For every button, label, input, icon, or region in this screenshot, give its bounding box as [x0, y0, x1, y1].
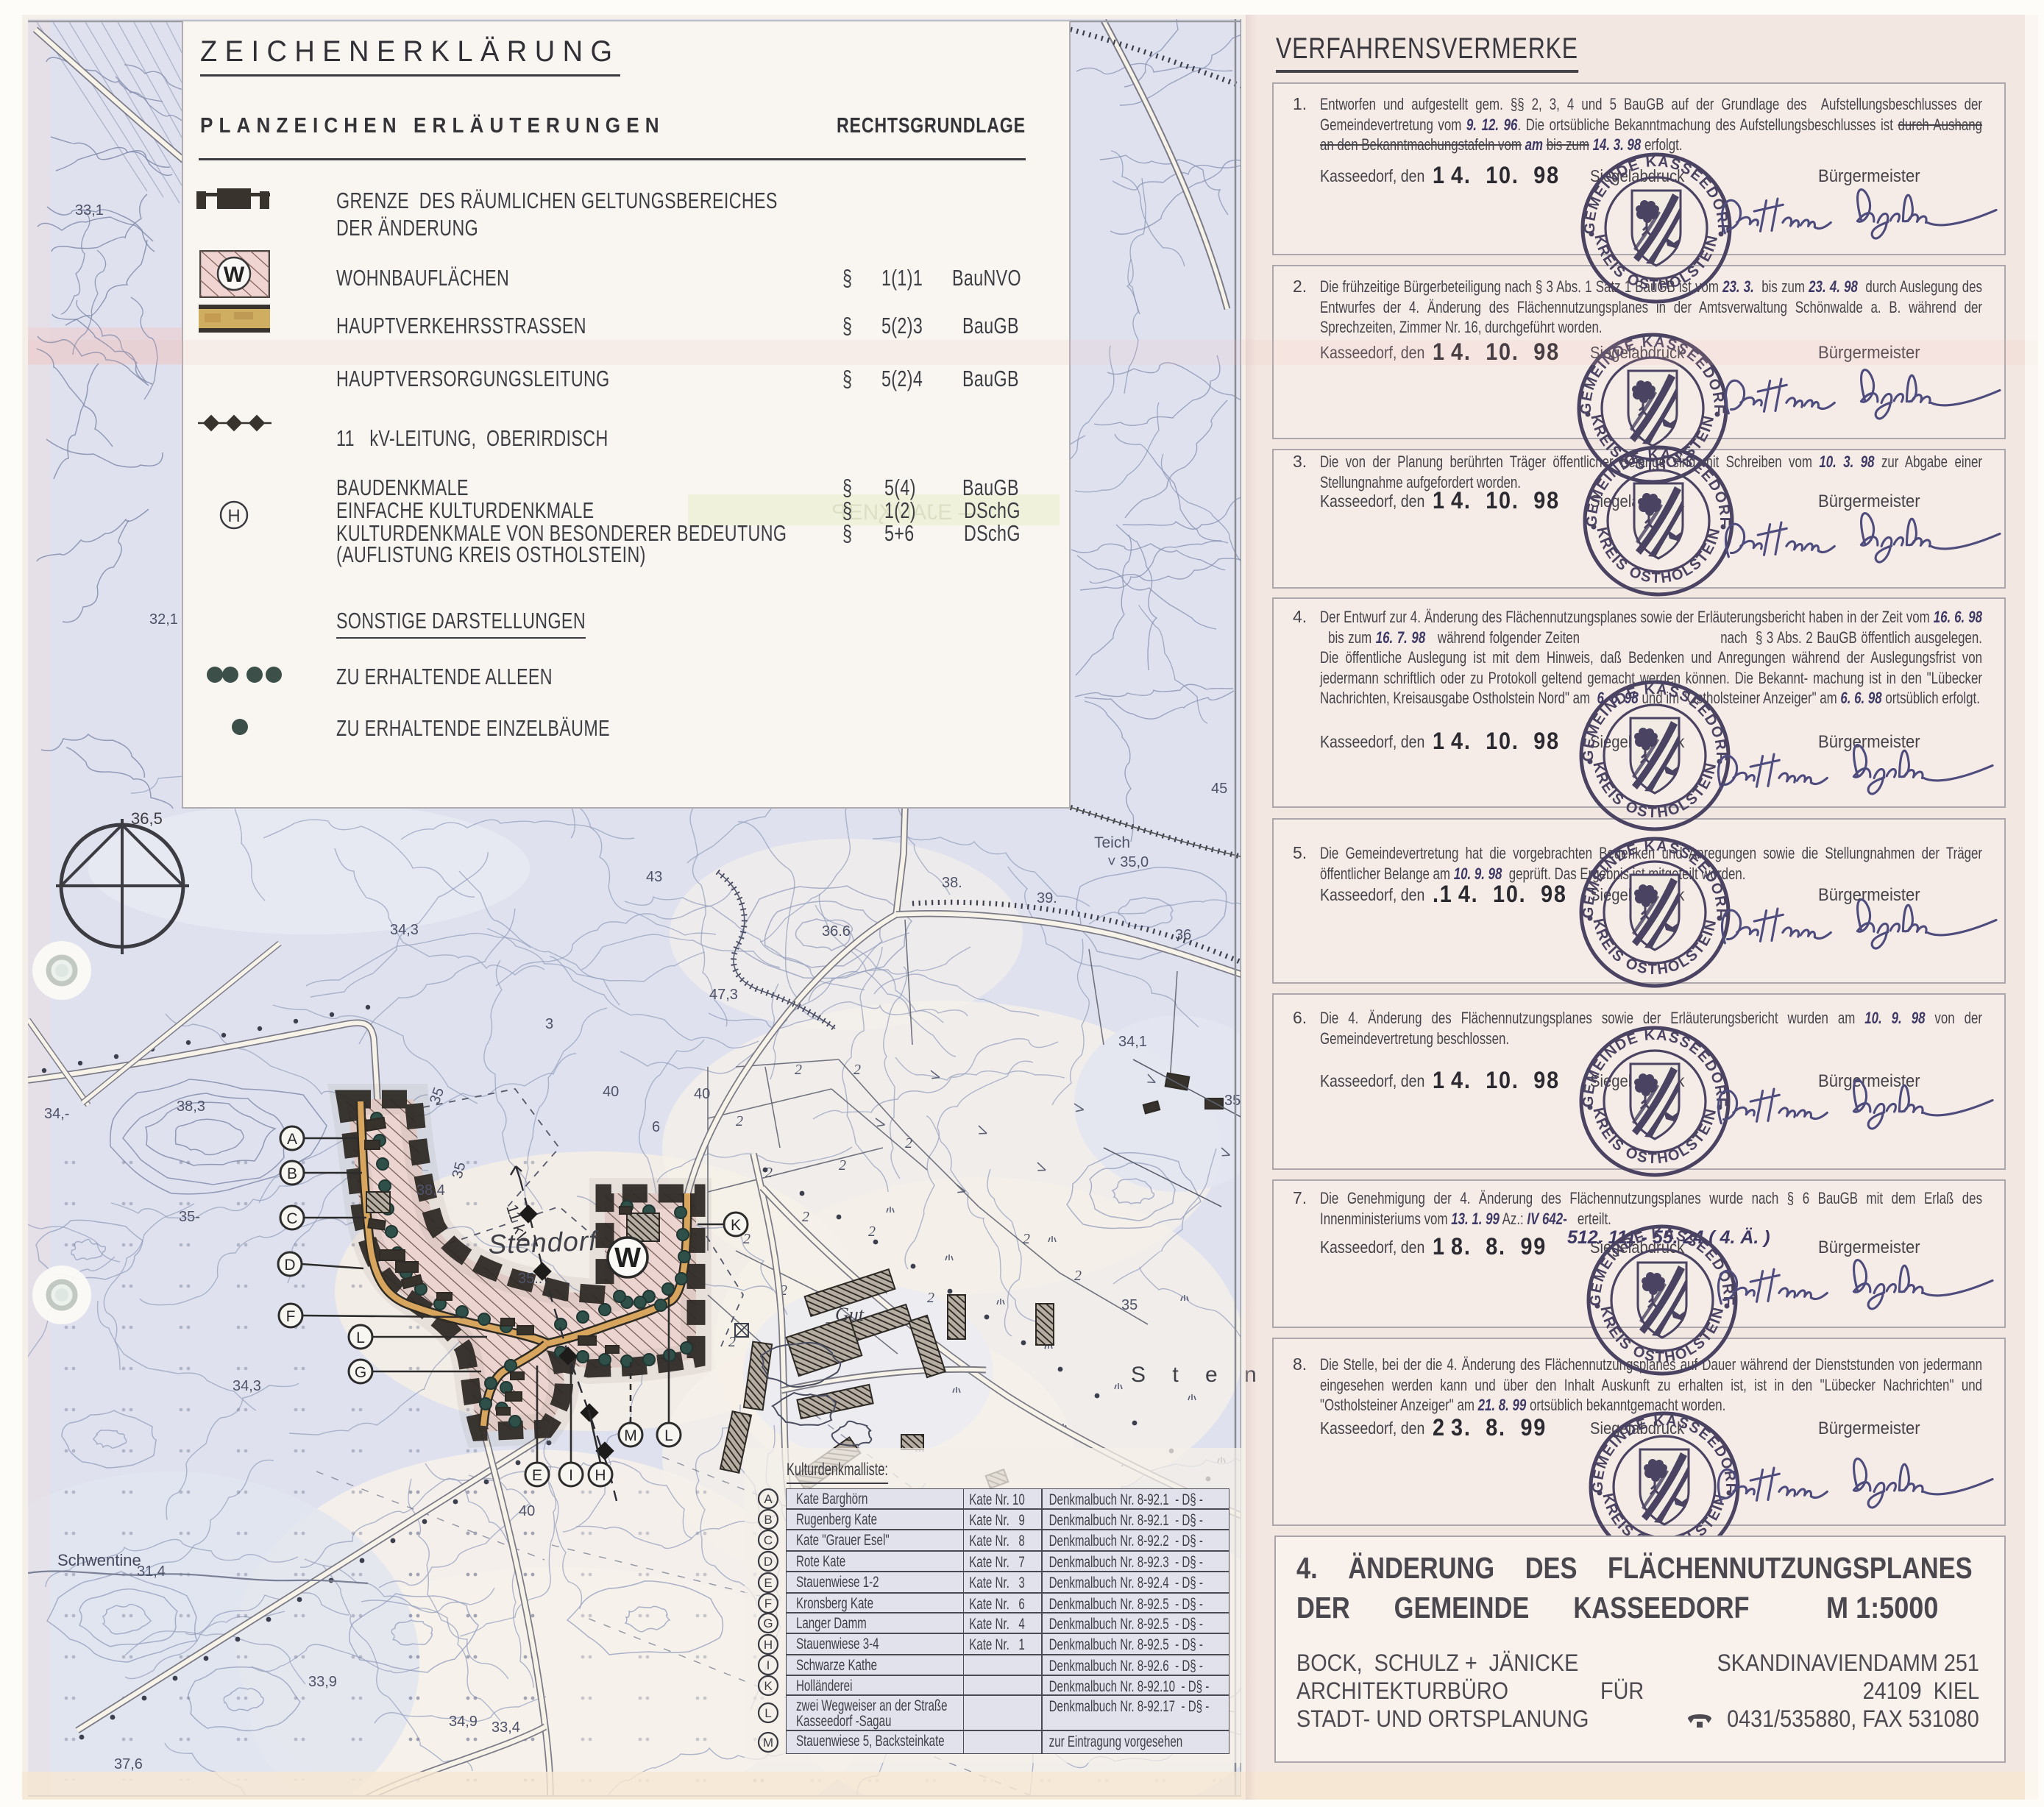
- svg-text:B: B: [764, 1513, 772, 1527]
- svg-text:40: 40: [694, 1086, 710, 1102]
- svg-text:34,1: 34,1: [1118, 1034, 1147, 1050]
- svg-text:2: 2: [839, 1157, 846, 1174]
- svg-text:Stendorf: Stendorf: [488, 1226, 600, 1260]
- svg-text:6: 6: [652, 1119, 660, 1135]
- svg-text:36: 36: [1175, 927, 1191, 943]
- svg-text:34,3: 34,3: [390, 922, 419, 938]
- svg-text:Teich: Teich: [1094, 834, 1130, 851]
- svg-text:F: F: [764, 1597, 772, 1611]
- svg-text:2: 2: [795, 1062, 802, 1078]
- svg-text:34,3: 34,3: [233, 1378, 261, 1394]
- svg-text:G: G: [763, 1616, 773, 1630]
- svg-text:35: 35: [1224, 1093, 1241, 1109]
- svg-text:3: 3: [545, 1016, 553, 1032]
- svg-text:E: E: [532, 1467, 542, 1484]
- svg-text:38,4: 38,4: [416, 1182, 445, 1199]
- svg-text:B: B: [287, 1165, 297, 1182]
- svg-text:2: 2: [802, 1209, 809, 1225]
- svg-text:D: D: [764, 1555, 773, 1569]
- svg-text:45: 45: [1211, 781, 1227, 797]
- svg-text:Schwentine: Schwentine: [57, 1551, 141, 1569]
- svg-text:H: H: [595, 1467, 606, 1484]
- svg-text:2: 2: [736, 1113, 743, 1129]
- svg-text:C: C: [286, 1210, 297, 1227]
- svg-text:35-: 35-: [179, 1209, 200, 1225]
- svg-text:36.6: 36.6: [822, 923, 851, 940]
- svg-text:M: M: [763, 1736, 773, 1750]
- svg-text:A: A: [764, 1492, 773, 1506]
- svg-text:L: L: [356, 1329, 365, 1346]
- svg-text:38.: 38.: [942, 875, 962, 891]
- svg-text:H: H: [227, 506, 240, 526]
- svg-text:36,5: 36,5: [131, 809, 163, 828]
- svg-text:K: K: [764, 1679, 773, 1693]
- svg-text:37,6: 37,6: [114, 1756, 143, 1772]
- svg-text:H: H: [764, 1638, 773, 1652]
- svg-text:31,4: 31,4: [137, 1563, 166, 1580]
- svg-text:W: W: [224, 263, 245, 287]
- svg-text:33,1: 33,1: [75, 202, 104, 219]
- svg-text:D: D: [284, 1257, 295, 1274]
- svg-text:E: E: [764, 1576, 772, 1590]
- svg-text:K: K: [731, 1217, 741, 1234]
- svg-text:2: 2: [854, 1062, 861, 1078]
- svg-text:35..: 35..: [518, 1271, 542, 1287]
- svg-text:F: F: [286, 1308, 296, 1325]
- svg-text:A: A: [287, 1131, 297, 1148]
- svg-text:35: 35: [1121, 1297, 1138, 1313]
- svg-text:L: L: [664, 1427, 673, 1444]
- svg-text:40: 40: [603, 1084, 619, 1100]
- svg-text:33,9: 33,9: [308, 1674, 337, 1690]
- svg-text:34,9: 34,9: [449, 1714, 478, 1730]
- svg-text:2: 2: [868, 1224, 876, 1240]
- svg-text:34,-: 34,-: [44, 1106, 69, 1122]
- svg-text:Gut: Gut: [835, 1304, 865, 1325]
- svg-text:2: 2: [1023, 1231, 1030, 1247]
- svg-text:G: G: [355, 1364, 366, 1381]
- svg-text:2: 2: [905, 1135, 912, 1151]
- svg-text:2: 2: [927, 1290, 934, 1306]
- svg-text:M: M: [624, 1427, 637, 1444]
- svg-text:33,4: 33,4: [492, 1719, 520, 1736]
- svg-text:2: 2: [765, 1165, 773, 1181]
- svg-text:I: I: [767, 1658, 770, 1672]
- svg-text:40: 40: [519, 1503, 535, 1519]
- svg-text:32,1: 32,1: [149, 611, 178, 628]
- svg-text:C: C: [764, 1533, 773, 1547]
- svg-text:W: W: [614, 1243, 641, 1274]
- svg-text:L: L: [764, 1706, 771, 1720]
- svg-text:47,3: 47,3: [709, 987, 738, 1003]
- svg-text:I: I: [569, 1467, 573, 1484]
- svg-text:˅ 35,0: ˅ 35,0: [1107, 854, 1149, 870]
- svg-text:43: 43: [646, 869, 662, 885]
- svg-text:39.: 39.: [1037, 890, 1057, 906]
- svg-text:38,3: 38,3: [177, 1098, 205, 1115]
